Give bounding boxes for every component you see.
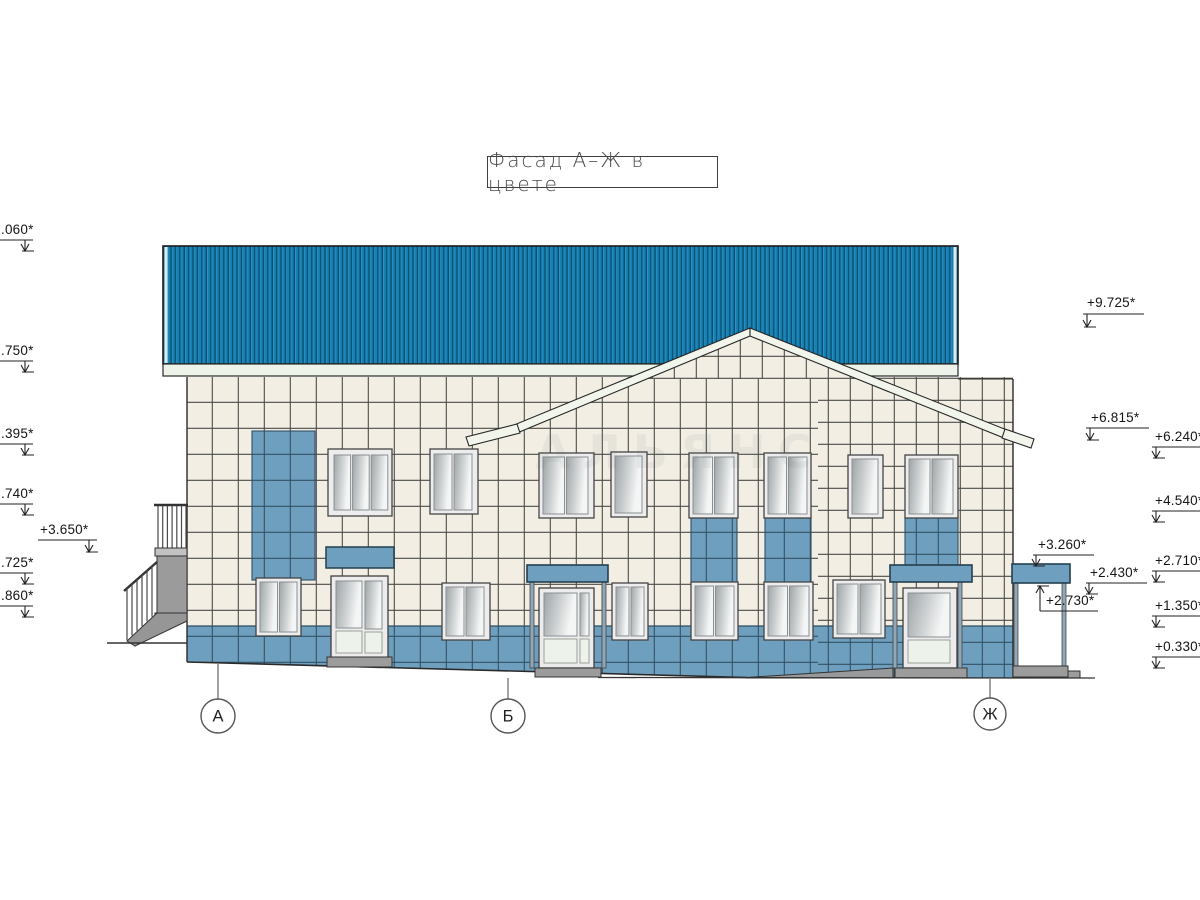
ground-line-right [598, 678, 1095, 679]
elevation-marker: +2.730* [1046, 593, 1094, 608]
elevation-marker: +2.430* [1090, 565, 1138, 580]
roof-band [163, 246, 958, 376]
elevation-marker: +3.650* [40, 522, 88, 537]
elevation-marker: .060* [1, 222, 34, 237]
window [611, 452, 647, 517]
canopy-right [1012, 564, 1070, 583]
canopy-zh [890, 565, 972, 582]
window [256, 578, 301, 636]
elevation-marker: +6.240* [1155, 429, 1200, 444]
window [430, 449, 478, 514]
window [764, 582, 813, 640]
window [328, 449, 392, 516]
elevation-marker: .395* [1, 426, 34, 441]
axis-label-a: А [212, 708, 223, 727]
elevation-marker: .725* [1, 555, 34, 570]
axis-label-b: Б [503, 708, 514, 727]
right-platform [1013, 666, 1068, 677]
axis-label-zh: Ж [982, 706, 997, 725]
facade-drawing-sheet: АЛЬЯНС Фасад А–Ж в цвете .060* .750* .39… [0, 0, 1200, 900]
window [689, 453, 738, 518]
window [833, 580, 885, 638]
right-step [1068, 671, 1080, 678]
elevation-marker: +4.540* [1155, 493, 1200, 508]
drawing-title: Фасад А–Ж в цвете [487, 156, 718, 188]
elevation-marker: +9.725* [1087, 295, 1135, 310]
threshold [895, 668, 967, 678]
window [905, 455, 958, 518]
elevation-marker: .860* [1, 588, 34, 603]
elevation-marker: +1.350* [1155, 598, 1200, 613]
threshold [535, 668, 601, 677]
window [442, 583, 490, 640]
elevation-marker: +3.260* [1038, 537, 1086, 552]
window [539, 453, 594, 518]
window [764, 453, 811, 518]
storefront-door [327, 576, 392, 667]
elevation-marker: +6.815* [1091, 410, 1139, 425]
door-zh [895, 588, 967, 678]
elevation-marker: +2.710* [1155, 553, 1200, 568]
window [848, 455, 883, 518]
elevation-marker: +0.330* [1155, 639, 1200, 654]
canopy-b [527, 565, 608, 582]
threshold [327, 657, 392, 667]
window [691, 582, 738, 640]
door-b [535, 588, 601, 677]
facade-elevation-graphic [0, 0, 1200, 900]
window [612, 583, 648, 640]
elevation-marker: .740* [1, 486, 34, 501]
entrance-stair [107, 505, 188, 646]
stair-stringer [127, 613, 187, 646]
blue-sill-panel [326, 547, 394, 568]
elevation-marker: .750* [1, 343, 34, 358]
